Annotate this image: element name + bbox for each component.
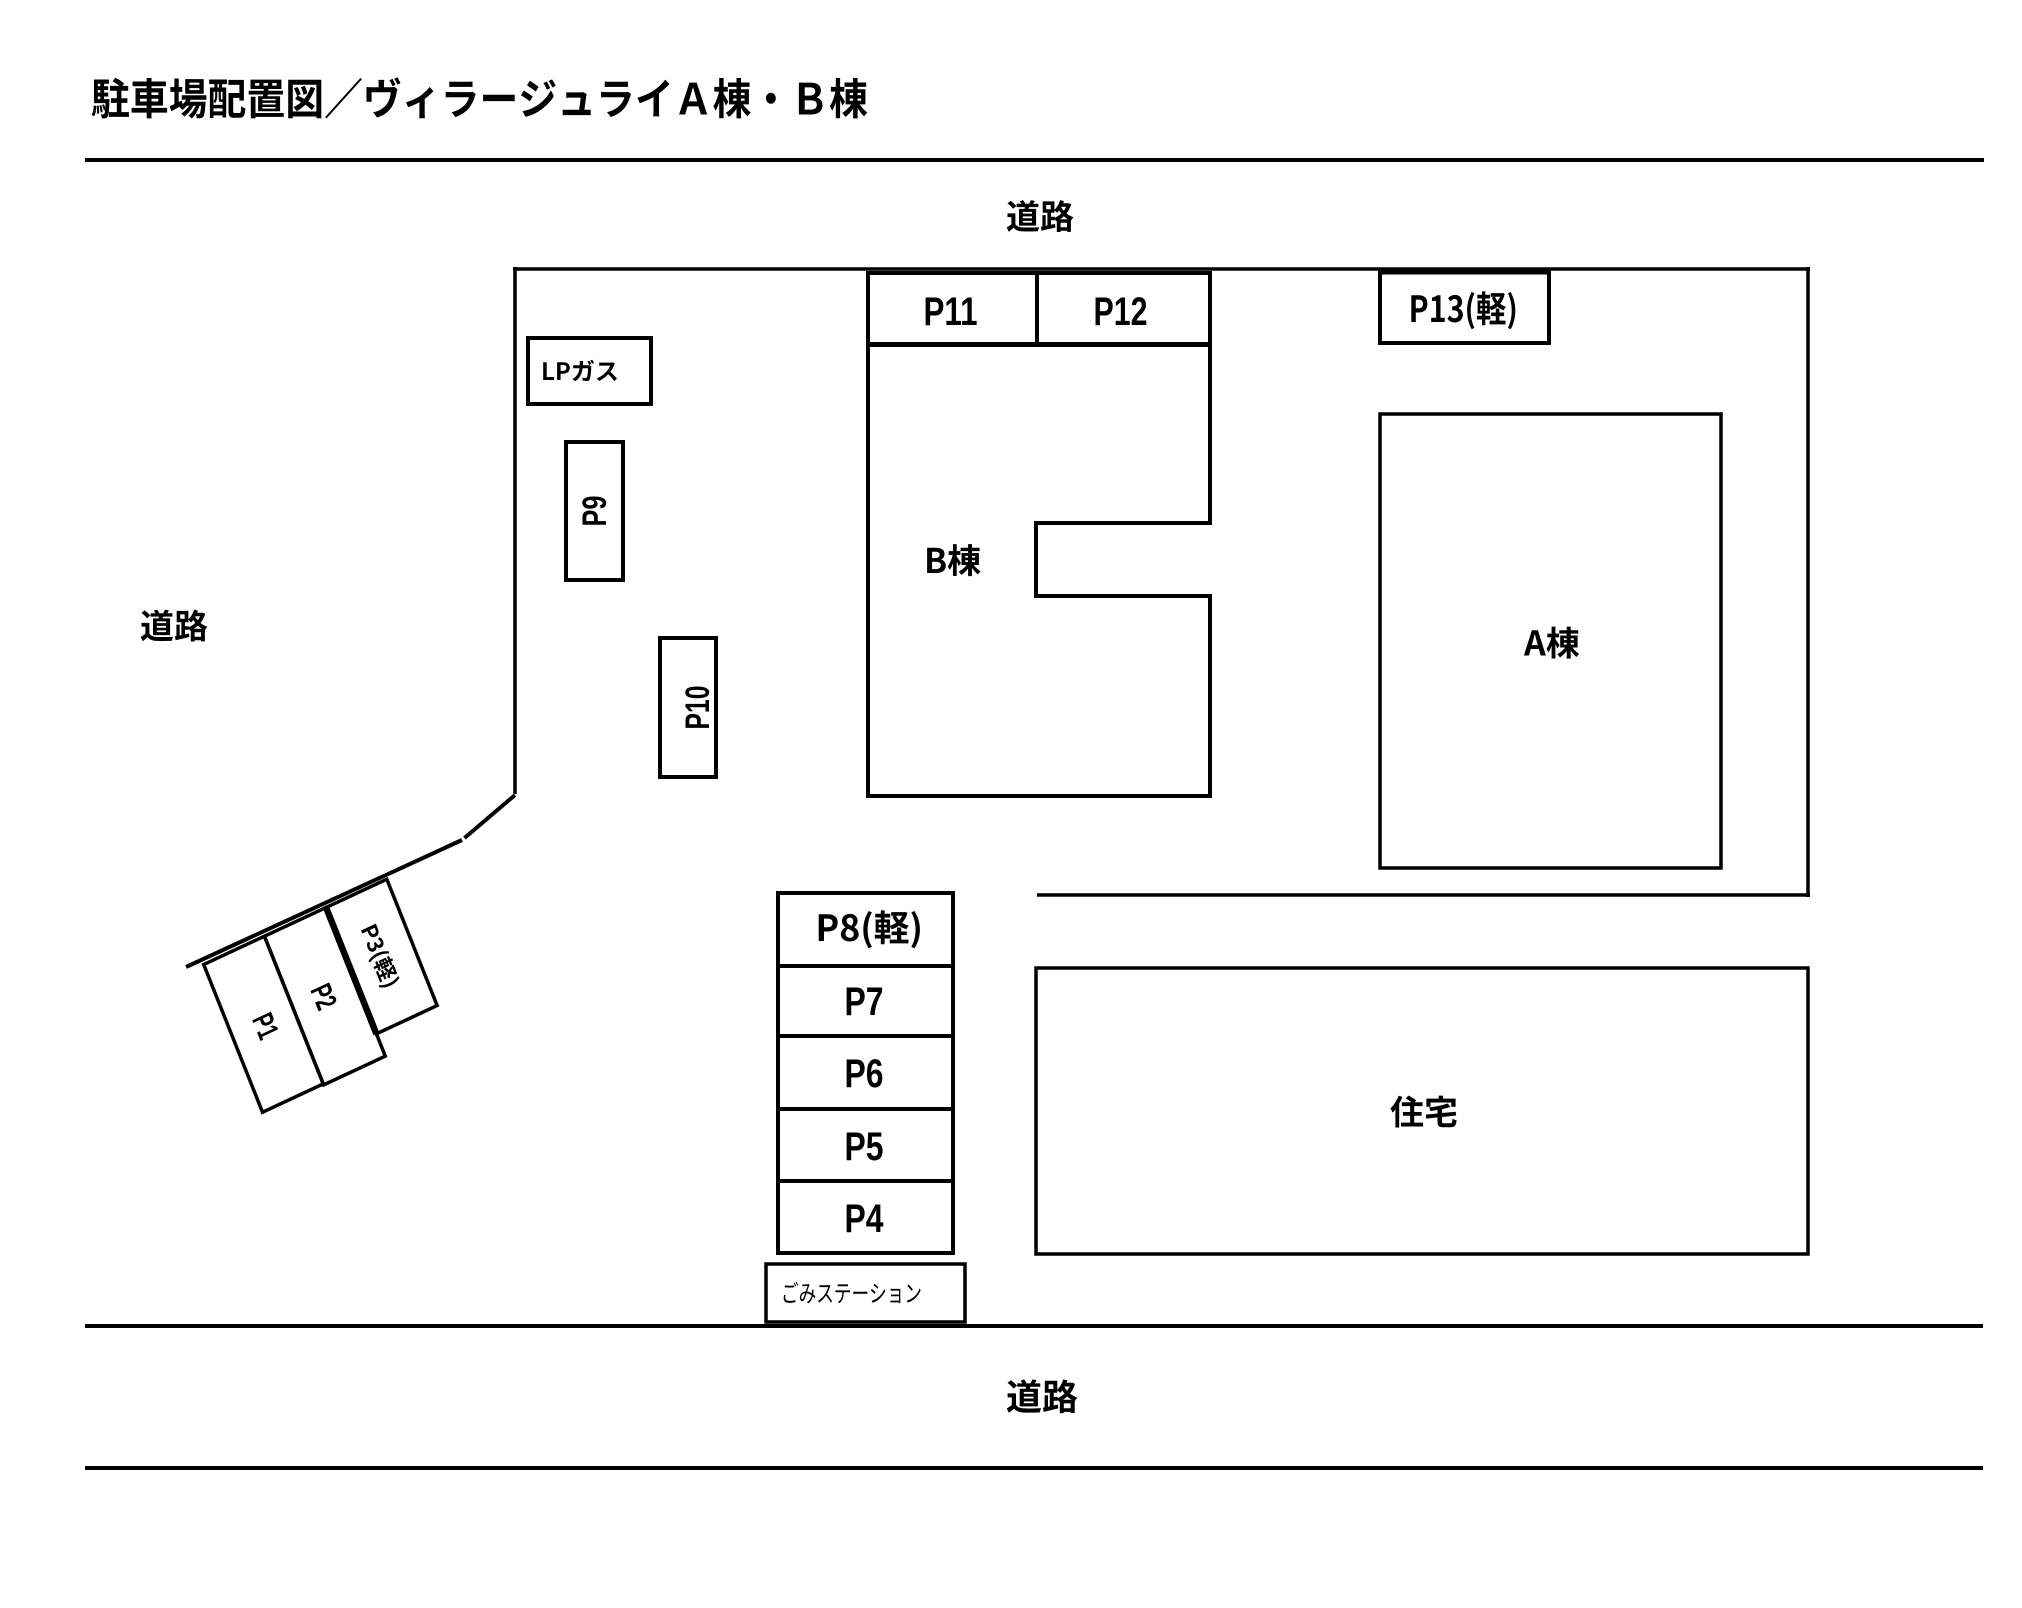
- svg-text:P4: P4: [845, 1197, 885, 1241]
- svg-text:P6: P6: [845, 1052, 884, 1096]
- svg-text:P5: P5: [845, 1125, 884, 1169]
- svg-text:P7: P7: [845, 980, 884, 1024]
- svg-text:P9: P9: [576, 496, 614, 527]
- svg-text:P1: P1: [245, 1008, 284, 1044]
- svg-text:P12: P12: [1094, 290, 1148, 334]
- svg-text:P2: P2: [304, 979, 343, 1015]
- svg-text:P10: P10: [679, 686, 717, 730]
- svg-text:P11: P11: [924, 290, 978, 334]
